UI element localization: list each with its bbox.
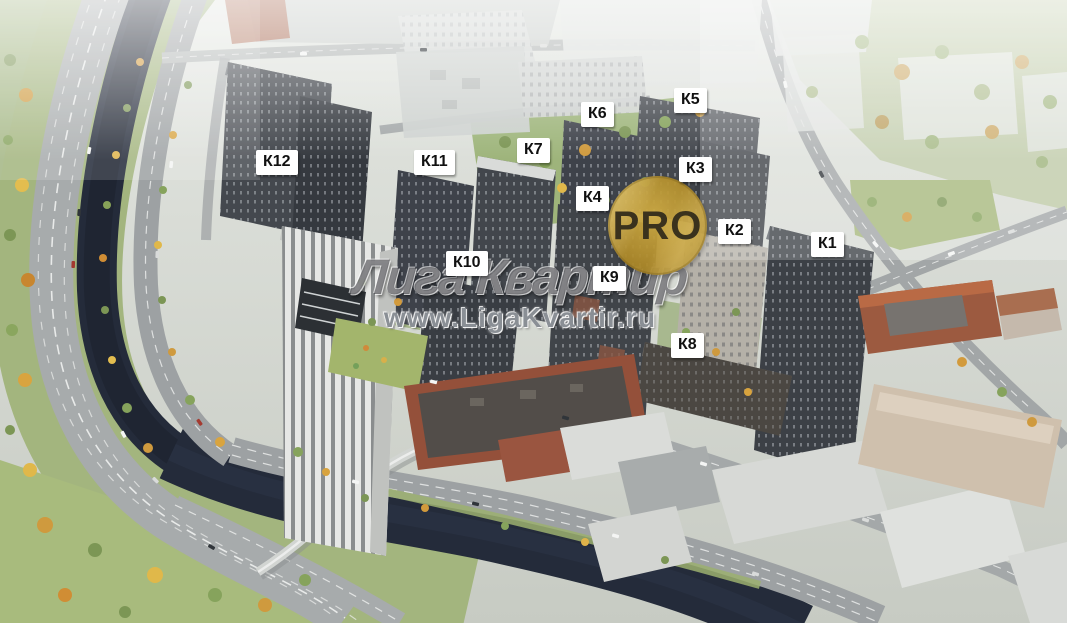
building-label-к12: К12 <box>256 150 298 175</box>
building-label-к3: К3 <box>679 157 712 182</box>
pro-badge-label: PRO <box>613 204 703 249</box>
building-label-к5: К5 <box>674 88 707 113</box>
building-label-к4: К4 <box>576 186 609 211</box>
building-label-к11: К11 <box>414 150 455 175</box>
aerial-scene <box>0 0 1067 623</box>
building-label-к7: К7 <box>517 138 550 163</box>
building-label-к6: К6 <box>581 102 614 127</box>
masterplan-render: Лига Квартир www.LigaKvartir.ru PRO К1К2… <box>0 0 1067 623</box>
building-label-к2: К2 <box>718 219 751 244</box>
building-label-к9: К9 <box>593 266 626 291</box>
building-label-к8: К8 <box>671 333 704 358</box>
building-label-к10: К10 <box>446 251 488 276</box>
pro-badge: PRO <box>608 176 707 275</box>
building-label-к1: К1 <box>811 232 844 257</box>
